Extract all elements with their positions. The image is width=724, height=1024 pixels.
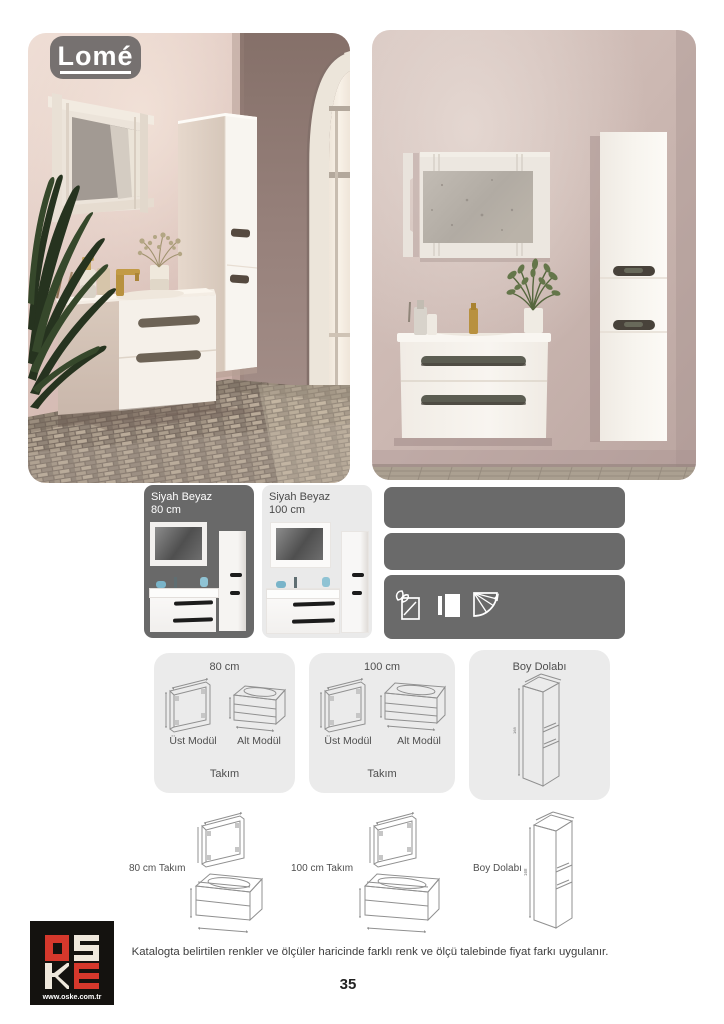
svg-text:168: 168	[513, 727, 517, 734]
svg-text:168: 168	[524, 868, 528, 876]
svg-text:www.oske.com.tr: www.oske.com.tr	[42, 992, 102, 1001]
